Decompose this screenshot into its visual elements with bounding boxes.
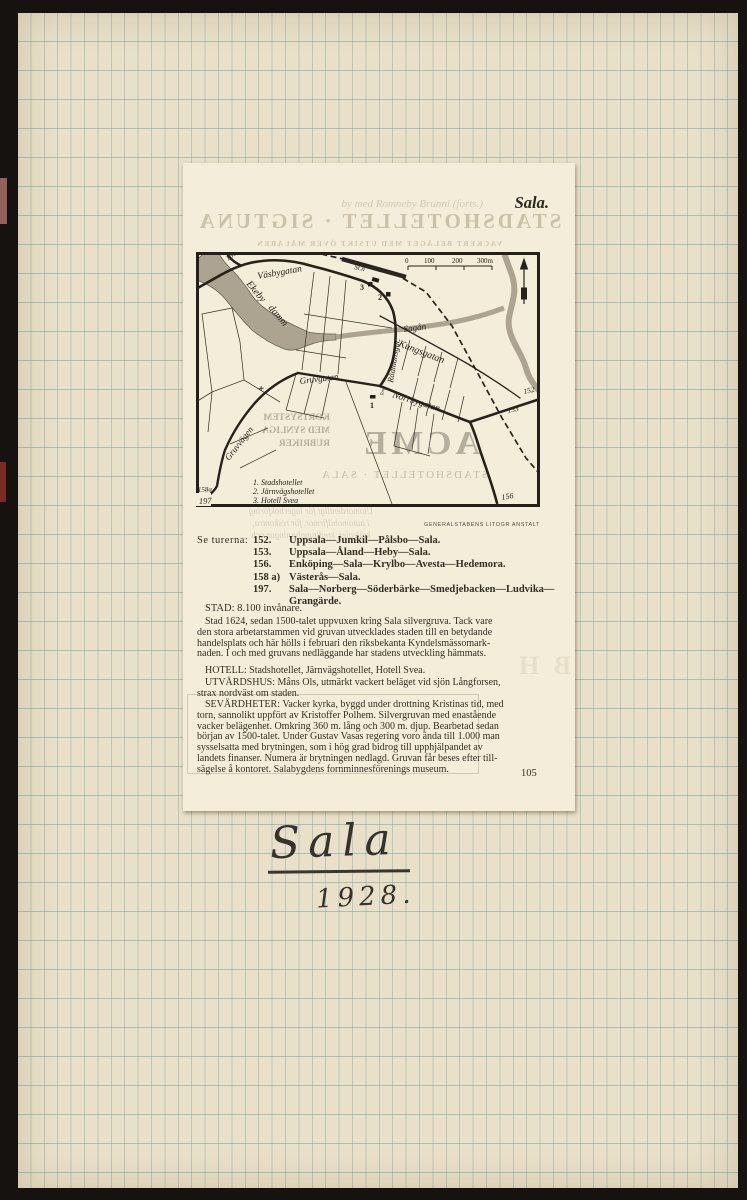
scale-bar: 0 100 200 300m	[405, 257, 494, 270]
scale-0: 0	[405, 257, 409, 265]
hotell-line: HOTELL: Stadshotellet, Järnvägshotellet,…	[197, 665, 425, 676]
handwritten-year: 1928.	[315, 879, 416, 914]
label-kungsgatan: Kungsgatan	[396, 338, 446, 366]
bleedthrough-forts-line: by med Romneby Brunni (forts.)	[342, 198, 483, 210]
bleedthrough-kort1: KORTSYSTEM	[263, 413, 330, 423]
map-bleedthrough: ACME KORTSYSTEM MED SYNLIGA RUBRIKER STA…	[262, 413, 488, 481]
stad-line: STAD: 8.100 invånare.	[197, 603, 302, 614]
paragraph-line: strax nordväst om staden.	[197, 689, 501, 700]
route-item: 158 a) Västerås—Sala.	[253, 572, 554, 584]
legend-stadshotellet: 1. Stadshotellet	[253, 478, 303, 487]
route-number: 197.	[253, 584, 289, 596]
route-item: 152. Uppsala—Jumkil—Pålsbo—Sala.	[253, 535, 554, 547]
album-photo: { "page": { "title": "Sala.", "page_numb…	[0, 0, 747, 1200]
handwritten-title: Sala	[269, 814, 399, 869]
label-sagan: Sagån	[403, 321, 427, 334]
label-158a: 158a	[198, 485, 213, 494]
bleedthrough-subheader: VACKERT BELÄGET MED UTSIKT ÖVER MÄLAREN	[183, 239, 575, 248]
river-right	[504, 252, 540, 392]
route-number: 158 a)	[253, 572, 289, 584]
bleedthrough-kort2: MED SYNLIGA	[262, 426, 330, 436]
marker-1: 1	[370, 401, 374, 410]
label-vasbygatan: Väsbygatan	[257, 264, 303, 282]
marker-3: 3	[360, 283, 364, 292]
bleedthrough-side-letters: B H	[515, 651, 571, 681]
town-map-sala: ACME KORTSYSTEM MED SYNLIGA RUBRIKER STA…	[196, 252, 540, 507]
scale-100: 100	[424, 257, 435, 265]
label-152: 152	[523, 385, 536, 396]
pasted-book-page: by med Romneby Brunni (forts.) Sala. STA…	[183, 163, 575, 811]
bleedthrough-stads-sala: STADSHOTELLET · SALA	[320, 469, 488, 481]
utvardshus-paragraph: UTVÄRDSHUS: Måns Ols, utmärkt vackert be…	[197, 678, 501, 700]
page-number: 105	[521, 768, 537, 779]
route-item: 153. Uppsala—Åland—Heby—Sala.	[253, 547, 554, 559]
label-norrbygatan: Norrbygatan	[390, 390, 441, 414]
route-text: Sala—Norberg—Söderbärke—Smedjebacken—Lud…	[289, 584, 554, 596]
route-text: Uppsala—Jumkil—Pålsbo—Sala.	[289, 535, 440, 547]
scale-300m: 300m	[477, 257, 494, 265]
church-cross-icon: +	[258, 383, 264, 395]
label-197: 197	[199, 495, 213, 506]
bleedthrough-acme: ACME	[360, 425, 480, 462]
station-building	[372, 277, 380, 283]
route-text: Västerås—Sala.	[289, 572, 360, 584]
legend-hotell-svea: 3. Hotell Svea	[252, 496, 298, 505]
label-156-bottom: 156	[501, 491, 514, 502]
railway-station-band	[342, 259, 406, 277]
route-number: 153.	[253, 547, 289, 559]
route-list: 152. Uppsala—Jumkil—Pålsbo—Sala. 153. Up…	[253, 535, 554, 608]
paragraph-line: den stora arbetarstammen vid gruvan utve…	[197, 628, 492, 639]
album-edge-artifact	[0, 178, 7, 224]
paragraph-line: sägelse å kontoret. Salabygdens fornminn…	[197, 765, 504, 776]
paragraph-line: naden. I och med gruvans nedläggande har…	[197, 649, 492, 660]
sevardheter-paragraph: SEVÄRDHETER: Vacker kyrka, byggd under d…	[197, 700, 504, 776]
route-item: 197. Sala—Norberg—Söderbärke—Smedjebacke…	[253, 584, 554, 596]
road-exit-east	[470, 399, 540, 422]
route-text: Enköping—Sala—Krylbo—Avesta—Hedemora.	[289, 559, 506, 571]
route-number: 156.	[253, 559, 289, 571]
map-legend: 1. Stadshotellet 2. Järnvägshotellet 3. …	[252, 478, 315, 505]
label-torg: Torg	[380, 386, 387, 396]
album-edge-artifact	[0, 462, 6, 502]
route-item: 156. Enköping—Sala—Krylbo—Avesta—Hedemor…	[253, 559, 554, 571]
bleedthrough-kort3: RUBRIKER	[279, 439, 330, 449]
legend-jarnvagshotellet: 2. Järnvägshotellet	[253, 487, 315, 496]
label-156-top: 156	[224, 252, 239, 263]
route-number: 152.	[253, 535, 289, 547]
route-text: Uppsala—Åland—Heby—Sala.	[289, 547, 431, 559]
marker-2: 2	[378, 293, 382, 302]
label-153: 153	[507, 404, 520, 415]
label-station: St.n	[354, 263, 367, 273]
paragraph-line: torn, sannolikt uppfört av Kristoffer Po…	[197, 711, 504, 722]
north-arrow-icon	[521, 259, 528, 304]
stad-paragraph: Stad 1624, sedan 1500-talet uppvuxen kri…	[197, 617, 492, 660]
scale-200: 200	[452, 257, 463, 265]
routes-heading: Se turerna:	[197, 535, 248, 546]
map-svg: ACME KORTSYSTEM MED SYNLIGA RUBRIKER STA…	[196, 252, 540, 507]
map-credit: GENERALSTABENS LITOGR ANSTALT	[196, 522, 540, 528]
road-exit-south	[470, 422, 497, 503]
page-title: Sala.	[515, 193, 549, 213]
